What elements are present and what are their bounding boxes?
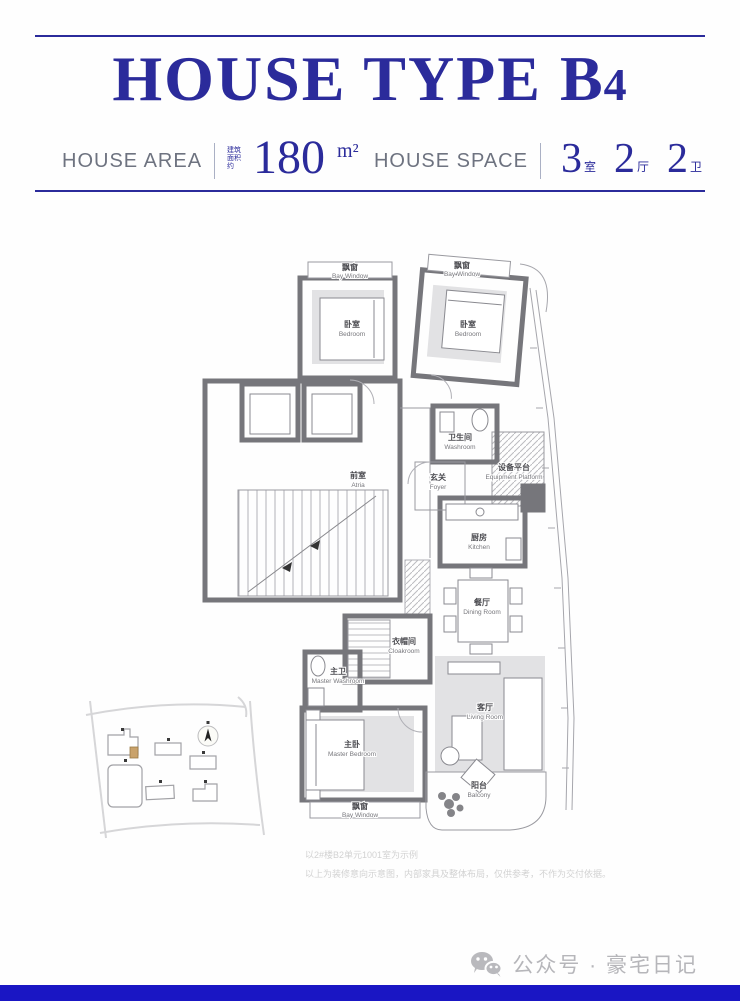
- svg-text:Bay Window: Bay Window: [444, 271, 480, 278]
- cloakroom-wardrobe: [348, 620, 390, 678]
- title-code-digit: 4: [604, 59, 628, 110]
- room-label-atria: 前室: [350, 470, 366, 480]
- room-label-bedroom-left: 卧室: [344, 319, 360, 329]
- svg-text:Bay Window: Bay Window: [332, 273, 368, 280]
- svg-text:Balcony: Balcony: [467, 792, 491, 799]
- space-halls-num: 2: [614, 141, 635, 179]
- room-label-bay-window-right: 飘窗: [454, 260, 470, 270]
- staircase: [238, 490, 388, 596]
- area-value: 180: [253, 136, 325, 179]
- elevators: [250, 394, 352, 434]
- room-label-equipment-platform: 设备平台: [498, 462, 530, 472]
- room-label-foyer: 玄关: [430, 472, 446, 482]
- room-label-balcony: 阳台: [471, 780, 487, 790]
- site-plan: [78, 693, 268, 848]
- space-halls: 2 厅: [614, 141, 649, 179]
- house-area-group: HOUSE AREA 建筑面积约 180 m²: [62, 136, 359, 179]
- corridor-hatch: [405, 560, 430, 615]
- room-label-washroom: 卫生间: [448, 432, 472, 442]
- svg-text:Living Room: Living Room: [467, 714, 503, 721]
- room-label-bay-window-bottom: 飘窗: [352, 801, 368, 811]
- title-main: HOUSE TYPE: [112, 42, 542, 116]
- room-label-cloakroom: 衣帽间: [392, 636, 416, 646]
- room-label-master-washroom: 主卫: [330, 666, 346, 676]
- disclaimer-line-2: 以上为装修意向示意图，内部家具及整体布局，仅供参考，不作为交付依据。: [305, 865, 611, 884]
- house-space-label: HOUSE SPACE: [374, 150, 528, 179]
- room-label-dining-room: 餐厅: [473, 597, 490, 607]
- title-code: B4: [560, 42, 628, 116]
- svg-text:Dining Room: Dining Room: [463, 609, 501, 616]
- bottom-bar: [0, 985, 740, 1001]
- room-label-kitchen: 厨房: [471, 532, 487, 542]
- room-label-living-room: 客厅: [476, 702, 493, 712]
- north-arrow-icon: [198, 721, 218, 746]
- space-baths-unit: 卫: [690, 158, 702, 179]
- page-title: HOUSE TYPE B4: [35, 42, 705, 116]
- top-rule: [35, 35, 705, 37]
- wechat-icon: [469, 950, 503, 978]
- svg-text:Master Bedroom: Master Bedroom: [328, 751, 376, 758]
- svg-text:Bedroom: Bedroom: [455, 331, 481, 338]
- space-rooms-unit: 室: [584, 158, 596, 179]
- room-label-master-bedroom: 主卧: [344, 739, 360, 749]
- space-baths: 2 卫: [667, 141, 702, 179]
- footer-account-name: 公众号 · 豪宅日记: [512, 949, 698, 979]
- house-area-label: HOUSE AREA: [62, 150, 202, 179]
- svg-text:Kitchen: Kitchen: [468, 544, 490, 551]
- area-unit: m²: [337, 140, 359, 179]
- divider: [540, 143, 541, 179]
- svg-text:Washroom: Washroom: [444, 444, 475, 451]
- space-rooms: 3 室: [561, 141, 596, 179]
- room-label-bay-window-left: 飘窗: [342, 262, 358, 272]
- space-baths-num: 2: [667, 141, 688, 179]
- page: HOUSE TYPE B4 HOUSE AREA 建筑面积约 180 m² HO…: [0, 0, 740, 1001]
- divider: [214, 143, 215, 179]
- room-label-bedroom-right: 卧室: [460, 319, 476, 329]
- disclaimer-line-1: 以2#楼B2单元1001室为示例: [305, 846, 611, 865]
- svg-text:Foyer: Foyer: [430, 484, 447, 491]
- header-subrow: HOUSE AREA 建筑面积约 180 m² HOUSE SPACE 3 室 …: [62, 136, 702, 179]
- svg-text:Master Washroom: Master Washroom: [312, 678, 365, 685]
- disclaimer: 以2#楼B2单元1001室为示例 以上为装修意向示意图，内部家具及整体布局，仅供…: [305, 846, 611, 884]
- svg-text:Bay Window: Bay Window: [342, 812, 378, 819]
- space-rooms-num: 3: [561, 141, 582, 179]
- svg-text:Atria: Atria: [351, 482, 365, 489]
- svg-text:Cloakroom: Cloakroom: [388, 648, 419, 655]
- area-note: 建筑面积约: [227, 147, 243, 179]
- footer: 公众号 · 豪宅日记: [469, 949, 698, 979]
- site-highlighted-building: [130, 747, 138, 758]
- svg-text:Bedroom: Bedroom: [339, 331, 365, 338]
- space-halls-unit: 厅: [637, 158, 649, 179]
- house-space-group: HOUSE SPACE 3 室 2 厅 2 卫: [374, 141, 702, 179]
- title-code-letter: B: [560, 43, 604, 114]
- mid-rule: [35, 190, 705, 192]
- svg-text:Equipment Platform: Equipment Platform: [485, 474, 542, 481]
- balcony-plant: [438, 792, 464, 817]
